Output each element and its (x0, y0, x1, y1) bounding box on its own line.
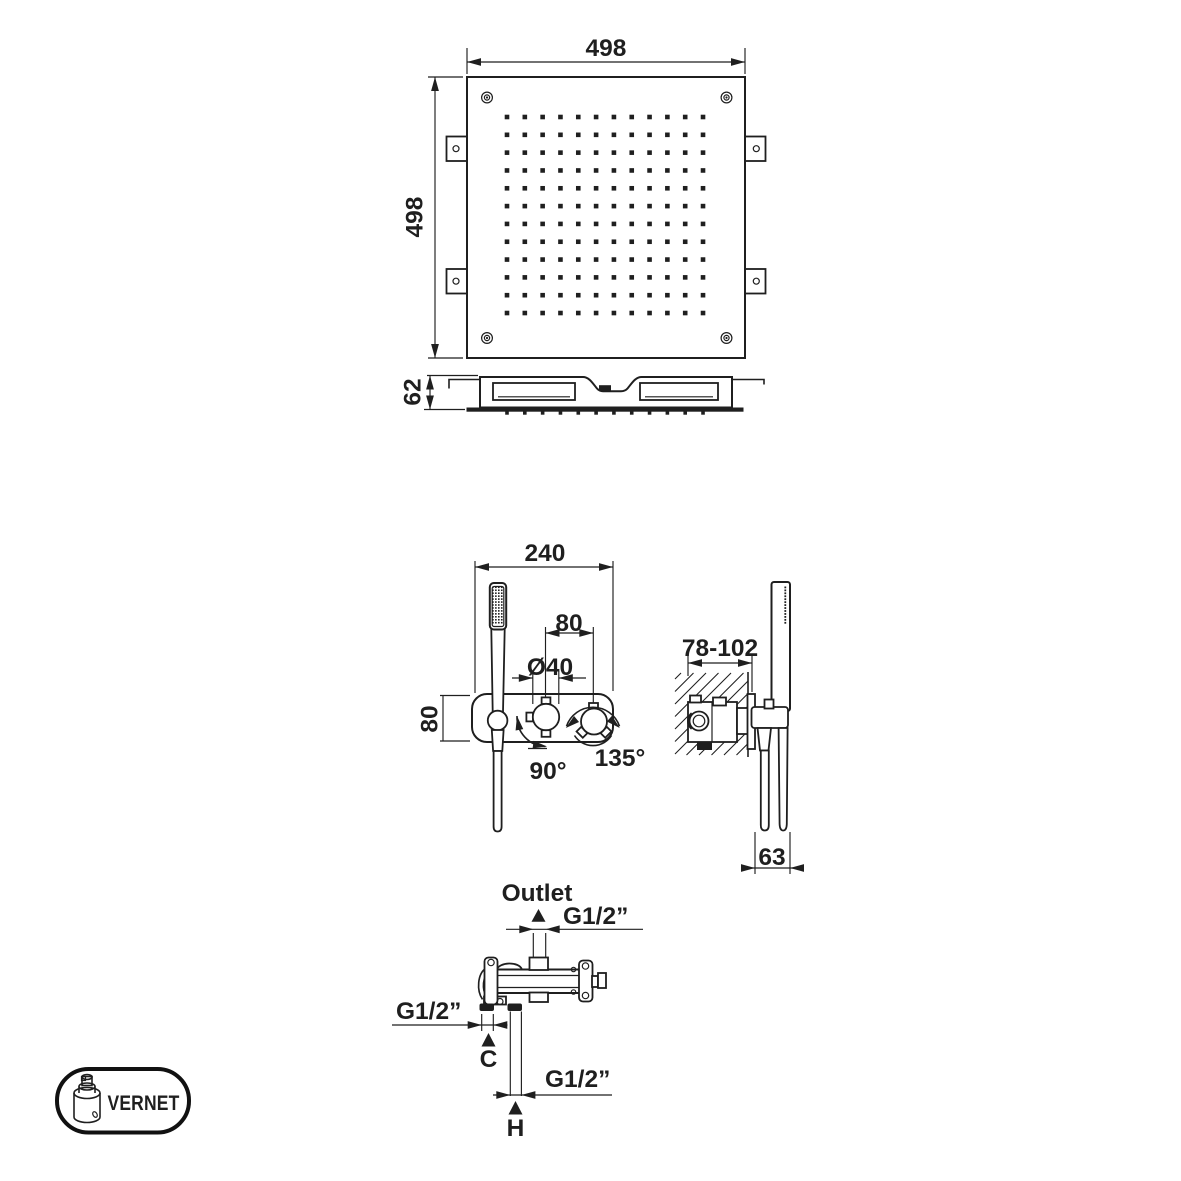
profile-dimensions: 62 (400, 376, 479, 410)
handshower-side-icon (752, 582, 791, 831)
outlet-direction-arrow (532, 909, 546, 922)
mixer-front-view: 240 80 Ø40 80 (417, 540, 646, 832)
label-outlet: Outlet (502, 880, 573, 907)
mounting-tab (447, 269, 468, 294)
valve-ear (579, 961, 593, 1002)
valve-connections-view: Outlet G1/2” (392, 880, 643, 1142)
dim-projection: 63 (758, 844, 785, 871)
dim-recess-depth: 78-102 (682, 635, 758, 662)
label-hot-thread: G1/2” (545, 1066, 610, 1093)
valve-main-bar (489, 970, 590, 994)
dim-mixer-height: 80 (417, 705, 444, 732)
water-inlet-connector (599, 385, 611, 391)
ceiling-bracket (449, 380, 480, 389)
profile-nozzle-ticks (505, 412, 705, 415)
mounting-tab (447, 137, 468, 162)
mixer-side-view: 78-102 63 (675, 582, 803, 874)
handshower-holder (488, 711, 508, 731)
dim-top-width: 498 (586, 35, 627, 62)
dim-top-height: 498 (402, 197, 429, 238)
vernet-logo: VERNET (57, 1069, 189, 1133)
dim-profile-height: 62 (400, 378, 427, 405)
mounting-tab (745, 137, 766, 162)
mounting-tab (745, 269, 766, 294)
hot-inlet-arrow (509, 1101, 523, 1115)
inlet-seal (508, 1004, 523, 1012)
cold-inlet-arrow (482, 1033, 496, 1047)
handshower-holder-arm (752, 707, 789, 728)
label-cold-thread: G1/2” (396, 998, 461, 1025)
label-mixer-rotation: 135° (595, 745, 646, 772)
embedded-valve-body (688, 696, 748, 751)
concealed-valve-body (480, 958, 607, 1012)
valve-ear (485, 958, 498, 1005)
shower-system-drawing: 498 498 62 (0, 0, 1181, 1181)
shower-head-top-view: 498 498 (402, 35, 766, 358)
logo-brand-text: VERNET (108, 1092, 180, 1115)
label-hot-marker: H (507, 1115, 525, 1142)
label-outlet-thread: G1/2” (563, 903, 628, 930)
technical-drawing-page: 498 498 62 (0, 0, 1181, 1181)
shower-head-profile-view: 62 (400, 376, 765, 415)
inlet-seal (480, 1004, 495, 1012)
label-diverter-rotation: 90° (529, 758, 566, 785)
label-cold-marker: C (480, 1046, 498, 1073)
ceiling-bracket (732, 380, 764, 385)
dim-mixer-width: 240 (525, 540, 566, 567)
